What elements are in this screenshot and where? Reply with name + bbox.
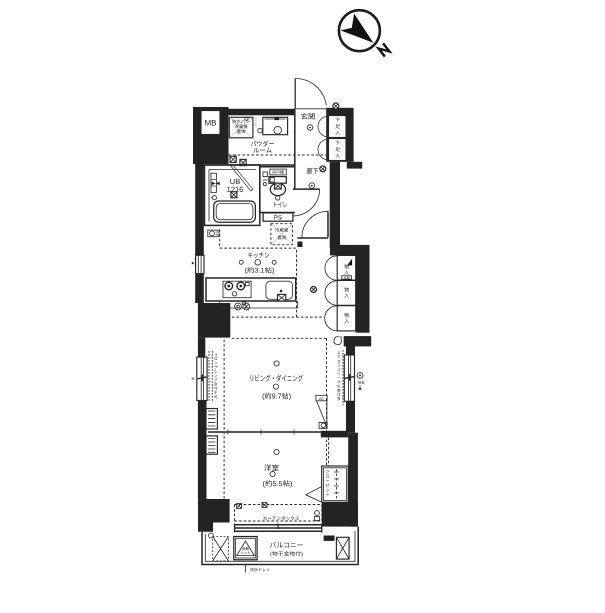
svg-text:排水ドレン: 排水ドレン [250, 567, 270, 572]
svg-text:ハッチ: ハッチ [240, 551, 251, 555]
svg-text:トイレ: トイレ [273, 201, 288, 209]
svg-text:入: 入 [335, 153, 340, 159]
svg-text:足: 足 [335, 147, 340, 153]
svg-text:枕棚: 枕棚 [344, 276, 350, 280]
svg-text:冷蔵庫: 冷蔵庫 [275, 228, 289, 233]
svg-text:足: 足 [335, 124, 340, 130]
svg-text:PS: PS [274, 215, 282, 222]
svg-text:物: 物 [344, 287, 349, 294]
svg-text:リビング・ダイニング: リビング・ダイニング [249, 374, 303, 383]
svg-text:下: 下 [335, 118, 340, 124]
svg-text:吊戸棚: 吊戸棚 [272, 170, 284, 175]
svg-text:洋室: 洋室 [264, 464, 279, 473]
svg-text:意: 意 [337, 396, 341, 401]
svg-text:B: B [192, 376, 195, 381]
svg-text:(約9.7帖): (約9.7帖) [262, 392, 291, 401]
svg-text:置場: 置場 [277, 235, 286, 240]
svg-text:カーテンボックス: カーテンボックス [263, 516, 300, 521]
svg-text:ルーム: ルーム [253, 148, 272, 155]
svg-text:可: 可 [214, 395, 218, 399]
svg-text:バルコニー: バルコニー [270, 542, 304, 550]
svg-text:ト: ト [325, 492, 329, 497]
svg-text:MB: MB [205, 119, 217, 128]
svg-text:(約5.5帖): (約5.5帖) [263, 480, 293, 488]
svg-text:排気: 排気 [358, 380, 366, 385]
svg-text:入: 入 [344, 293, 349, 300]
svg-text:(物干金物付): (物干金物付) [270, 551, 303, 558]
svg-text:(約3.1帖): (約3.1帖) [245, 267, 275, 275]
svg-text:物: 物 [344, 312, 349, 319]
svg-text:玄関: 玄関 [301, 112, 316, 121]
svg-text:廊下: 廊下 [307, 168, 319, 176]
svg-text:下: 下 [335, 141, 340, 147]
svg-text:置場: 置場 [237, 129, 246, 134]
svg-text:入: 入 [344, 318, 349, 325]
svg-text:キッチン: キッチン [248, 252, 270, 260]
svg-text:入: 入 [335, 130, 340, 136]
svg-text:AC: AC [319, 397, 325, 401]
svg-text:物: 物 [344, 264, 349, 271]
